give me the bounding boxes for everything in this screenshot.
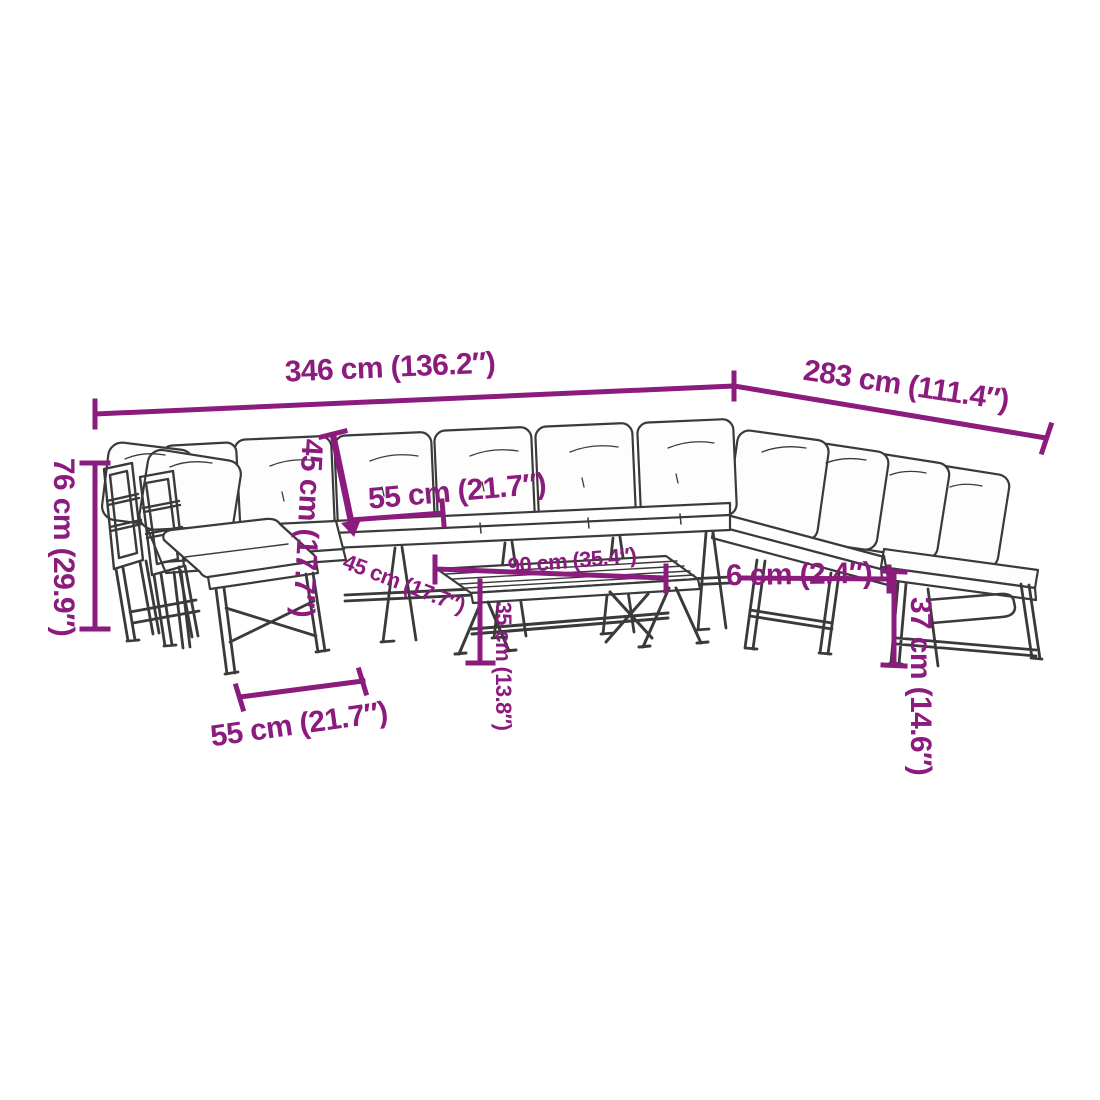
dim-label-bench-seat-height: 37 cm (14.6″) [905,597,935,775]
bench-loop-brace [927,594,1015,623]
right-wing-bench [712,429,1042,666]
dim-label-cushion-thickness: 6 cm (2.4″) [726,559,873,592]
dim-label-total-height: 76 cm (29.9″) [48,458,78,636]
dim-label-table-height: 35 cm (13.8″) [492,602,514,731]
dimension-diagram: 346 cm (136.2″) 283 cm (111.4″) 76 cm (2… [0,0,1100,1100]
furniture-line-art [100,419,1042,674]
